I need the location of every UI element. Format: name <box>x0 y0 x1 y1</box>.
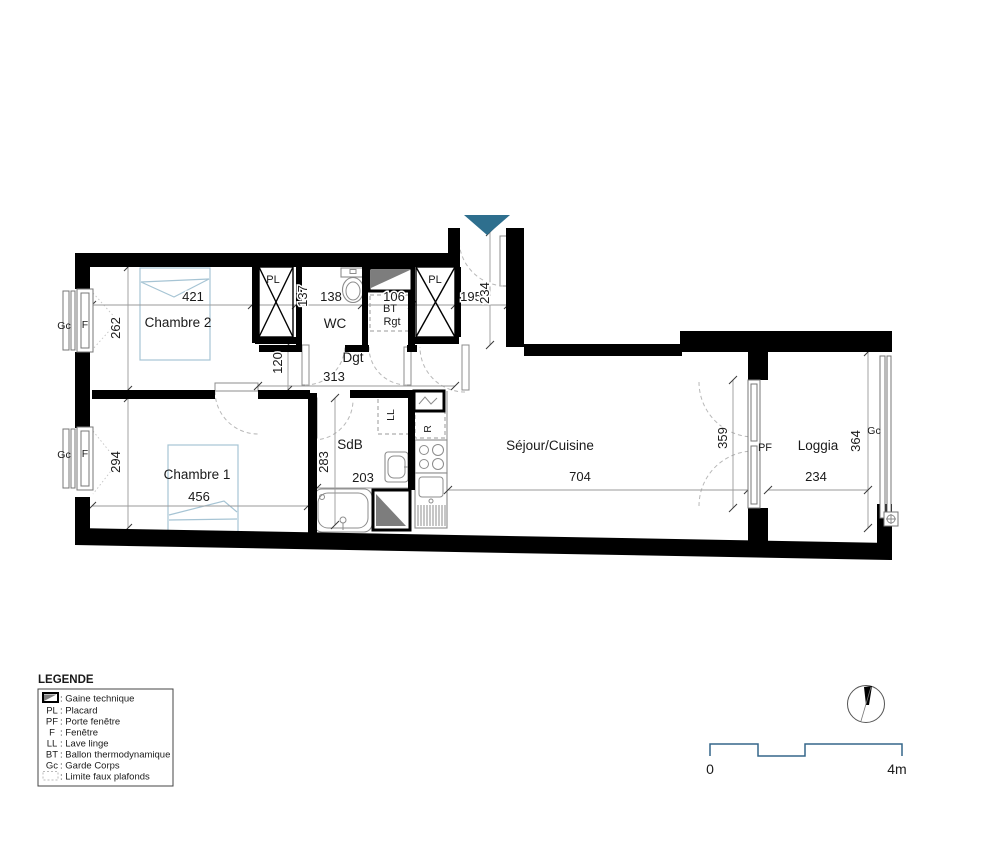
legend-title: LEGENDE <box>38 674 94 686</box>
fridge-dashed-box <box>415 412 445 438</box>
label-wc: WC <box>324 316 347 331</box>
dim-bt-width: 106 <box>383 289 405 304</box>
scale-max-label: 4m <box>887 761 906 777</box>
wall-chambre-divider-right <box>258 390 310 399</box>
dim-chambre2-width: 421 <box>182 289 204 304</box>
dim-sejour-bay: 359 <box>715 427 730 449</box>
wall-chambre2-right <box>252 267 259 343</box>
dim-chambre1-width: 456 <box>188 489 210 504</box>
legend-item-pl-label: : Placard <box>60 706 98 717</box>
wall-sejour-top <box>524 344 682 356</box>
dim-chambre2-depth: 262 <box>108 317 123 339</box>
bt-door-leaf <box>404 347 411 385</box>
toilet <box>341 268 365 303</box>
wall-left-lower <box>75 497 90 533</box>
legend-item-ll-abbr: LL <box>47 739 58 750</box>
washbasin <box>385 452 408 482</box>
tag-ll: LL <box>385 409 397 421</box>
hall-door-arc <box>420 347 465 392</box>
wall-sdb-top <box>350 390 415 398</box>
label-sdb: SdB <box>337 437 363 452</box>
tag-bt: BT <box>383 303 397 315</box>
dim-closet-width: 137 <box>295 285 310 307</box>
wall-dgt-bottom-3 <box>407 345 417 352</box>
legend-gaine-label: : Gaine technique <box>60 694 134 705</box>
tag-f-1: F <box>82 319 88 331</box>
tag-fridge: R <box>422 425 434 433</box>
dim-loggia-depth: 364 <box>848 430 863 452</box>
tag-gc-right: Gc <box>867 425 880 437</box>
label-chambre1: Chambre 1 <box>164 467 231 482</box>
flue-box <box>414 391 444 411</box>
bed-chambre1-blanket <box>169 519 237 520</box>
bt-door-arc <box>369 347 407 385</box>
tag-f-2: F <box>82 448 88 460</box>
wall-chambre-divider-left <box>92 390 215 399</box>
pf-door-arc-bottom <box>699 451 754 506</box>
garde-corps-loggia <box>880 356 891 518</box>
wall-entry-right <box>506 228 524 347</box>
floor-plan-page: 421 137 138 106 195 234 262 294 456 120 … <box>0 0 1000 857</box>
floor-plan-drawing: 421 137 138 106 195 234 262 294 456 120 … <box>0 0 1000 857</box>
legend-item-bt-label: : Ballon thermodynamique <box>60 750 170 761</box>
wall-top <box>75 253 448 267</box>
walls <box>75 228 892 560</box>
label-loggia: Loggia <box>798 438 839 453</box>
chambre2-door-leaf <box>215 383 258 391</box>
legend-item-pf-label: : Porte fenêtre <box>60 717 120 728</box>
dim-loggia-width: 234 <box>805 469 827 484</box>
legend-item-pf-abbr: PF <box>46 717 58 728</box>
scale-bar-line <box>710 744 902 756</box>
drain-symbol <box>884 512 898 526</box>
legend-item-gc-label: : Garde Corps <box>60 761 120 772</box>
gaine-technique-sdb <box>373 490 410 530</box>
wall-dgt-bottom-1 <box>259 345 302 352</box>
legend-gaine-icon <box>43 693 58 702</box>
legend-faux-plafond-label: : Limite faux plafonds <box>60 772 150 783</box>
wall-left-mid <box>75 352 90 428</box>
label-chambre2: Chambre 2 <box>145 315 212 330</box>
legend-item-f-abbr: F <box>49 728 55 739</box>
dim-sejour-length: 704 <box>569 469 591 484</box>
dim-sdb-width: 203 <box>352 470 374 485</box>
dim-wc-width: 138 <box>320 289 342 304</box>
gaine-technique-bt <box>369 268 412 291</box>
label-dgt: Dgt <box>342 350 363 365</box>
dim-dgt-width: 120 <box>270 352 285 374</box>
kitchen-sink <box>415 473 447 528</box>
scale-bar: 0 4m <box>706 744 907 777</box>
entry-door-arc <box>459 240 503 286</box>
dim-entry-depth: 234 <box>477 282 492 304</box>
tag-pl-2: PL <box>428 274 441 286</box>
stove <box>415 440 447 473</box>
legend-item-bt-abbr: BT <box>46 750 58 761</box>
label-sejour-cuisine: Séjour/Cuisine <box>506 438 594 453</box>
pl1-bottom-plate <box>255 337 297 344</box>
wall-wc-right <box>362 267 368 345</box>
sdb-door-arc <box>313 400 353 440</box>
legend-faux-plafond-icon <box>43 772 58 781</box>
legend-item-gc-abbr: Gc <box>46 761 58 772</box>
wall-entry-left-riser <box>448 228 460 267</box>
tag-gc-left-1: Gc <box>57 320 70 332</box>
legend: LEGENDE : Gaine technique PL : Placard P… <box>38 674 173 786</box>
wall-top-right <box>680 331 892 352</box>
north-compass-icon <box>848 686 885 723</box>
wall-bottom <box>75 528 892 560</box>
entry-door-leaf <box>500 236 507 286</box>
entrance-arrow-icon <box>464 215 510 235</box>
dim-chambre1-depth: 294 <box>108 451 123 473</box>
legend-item-pl-abbr: PL <box>46 706 58 717</box>
dim-dgt-length: 313 <box>323 369 345 384</box>
tag-rgt: Rgt <box>383 316 400 328</box>
tag-gc-left-2: Gc <box>57 449 70 461</box>
dim-sdb-depth: 283 <box>316 451 331 473</box>
hall-door-leaf <box>462 345 469 390</box>
wall-left-upper <box>75 253 90 289</box>
pl2-bottom-plate <box>412 337 459 344</box>
scale-zero-label: 0 <box>706 761 714 777</box>
wall-loggia-stub-bottom <box>748 508 768 542</box>
tag-pf: PF <box>758 442 772 454</box>
tag-pl-1: PL <box>266 274 279 286</box>
wall-loggia-stub-top <box>748 352 768 380</box>
legend-item-ll-label: : Lave linge <box>60 739 109 750</box>
bathtub <box>314 489 372 532</box>
legend-item-f-label: : Fenêtre <box>60 728 98 739</box>
chambre2-door-arc <box>215 391 258 434</box>
wc-door-leaf <box>302 345 309 385</box>
